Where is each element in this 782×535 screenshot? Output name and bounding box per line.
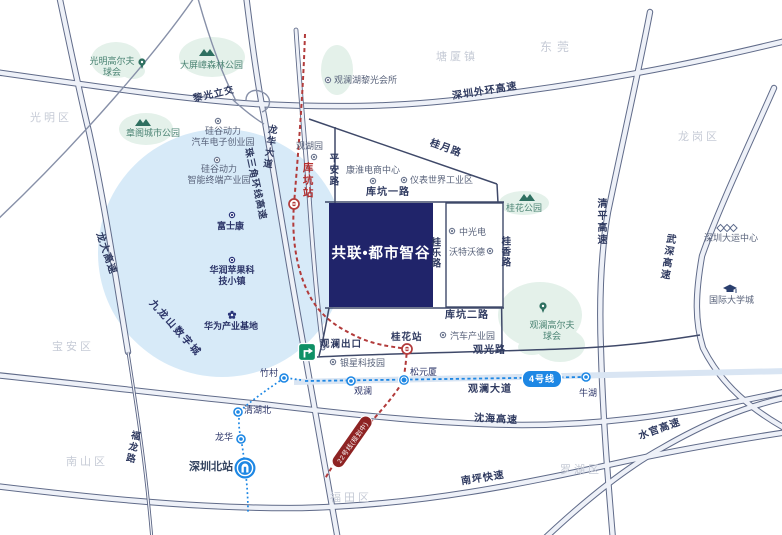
poi-label-auto-park: 汽车产业园 — [450, 331, 495, 342]
metro-label-guanlan: 观澜 — [354, 386, 372, 397]
poi-label-line: 硅谷动力 — [184, 126, 262, 137]
shenzhen-north-station-icon — [235, 458, 256, 479]
road-label-shenhai: 沈海高速 — [474, 413, 519, 427]
metro-label-guihua-station: 桂花站 — [391, 332, 423, 343]
road-label-kukeng2: 库坑二路 — [445, 310, 489, 322]
district-label-luohu: 罗湖区 — [560, 464, 602, 477]
project-name: 共联•都市智谷 — [329, 246, 433, 263]
district-label-nanshan: 南山区 — [66, 456, 108, 469]
niuhu-station-icon — [582, 373, 590, 381]
road-label-pingan: 平安路 — [327, 153, 338, 188]
poi-label-univ-city: 国际大学城 — [709, 295, 754, 306]
poi-label-foxconn: 富士康 — [217, 221, 244, 232]
poi-label-yibiao: 仪表世界工业区 — [410, 175, 473, 186]
poi-label-zhongguangdian: 中光电 — [459, 227, 486, 238]
poi-label-guanhuyuan: 观湖园 — [296, 141, 323, 152]
park-label-dapingzhang: 大屏嶂森林公园 — [180, 60, 243, 71]
songyuanxia-interchange-icon — [399, 375, 410, 386]
zhucun-station-icon — [280, 374, 288, 382]
poi-label-huawei: 华为产业基地 — [204, 321, 258, 332]
metro-label-shenzhen-north: 深圳北站 — [189, 461, 233, 474]
exit-label-guanlan: 观澜出口 — [320, 339, 362, 350]
guihua-station-icon — [402, 344, 412, 354]
poi-label-dayun: 深圳大运中心 — [704, 233, 758, 244]
district-label-baoan: 宝安区 — [52, 341, 94, 354]
road-label-guixiang: 桂香路 — [499, 236, 510, 268]
metro-line4-badge: 4号线 — [523, 371, 561, 387]
park-label-guihua: 桂花公园 — [506, 203, 542, 214]
district-label-tangxia: 塘厦镇 — [436, 51, 478, 64]
poi-label-line: 智能终端产业园 — [180, 175, 258, 186]
district-label-futian: 福田区 — [330, 492, 372, 505]
poi-label-yinxing: 银星科技园 — [340, 358, 385, 369]
poi-label-watwd: 沃特沃德 — [449, 247, 485, 258]
poi-label-line: 汽车电子创业园 — [184, 137, 262, 148]
poi-label-liguang-club: 观澜湖黎光会所 — [334, 75, 397, 86]
metro-label-kukeng-station: 库坑站 — [301, 162, 314, 200]
metro-label-niuhu: 牛湖 — [579, 388, 597, 399]
poi-label-kanghuai: 康淮电商中心 — [346, 165, 400, 176]
district-label-longgang: 龙岗区 — [678, 131, 720, 144]
metro-label-qinghubei: 清湖北 — [244, 405, 271, 416]
kukeng-station-icon — [289, 199, 299, 209]
district-label-dongguan: 东莞 — [540, 40, 574, 54]
park-label-zhangge: 章阁城市公园 — [126, 128, 180, 139]
road-label-guanlan-blvd: 观澜大道 — [468, 384, 512, 396]
metro-label-longhua: 龙华 — [215, 432, 233, 443]
exit-icon — [299, 344, 316, 361]
park-label-guangming-golf: 光明高尔夫球会 — [87, 56, 137, 78]
park-label-guanlan-golf: 观澜高尔夫球会 — [527, 320, 577, 342]
guanlan-station-icon — [347, 377, 355, 385]
poi-label-guigu-auto: 硅谷动力汽车电子创业园 — [184, 126, 262, 148]
road-label-guanguang: 观光路 — [473, 345, 506, 357]
location-map: 光明区 宝安区 南山区 福田区 罗湖区 龙岗区 东莞 塘厦镇 光明高尔夫球会 大… — [0, 0, 782, 535]
road-label-kukeng1: 库坑一路 — [366, 187, 410, 199]
road-label-qingping: 清平高速 — [594, 198, 606, 246]
metro-label-songyuanxia: 松元厦 — [410, 367, 437, 378]
poi-label-huarun: 华润苹果科技小镇 — [208, 265, 256, 287]
qinghubei-station-icon — [234, 408, 242, 416]
district-label-guangming: 光明区 — [30, 112, 72, 125]
longhua-station-icon — [237, 435, 245, 443]
metro-label-zhucun: 竹村 — [260, 368, 278, 379]
